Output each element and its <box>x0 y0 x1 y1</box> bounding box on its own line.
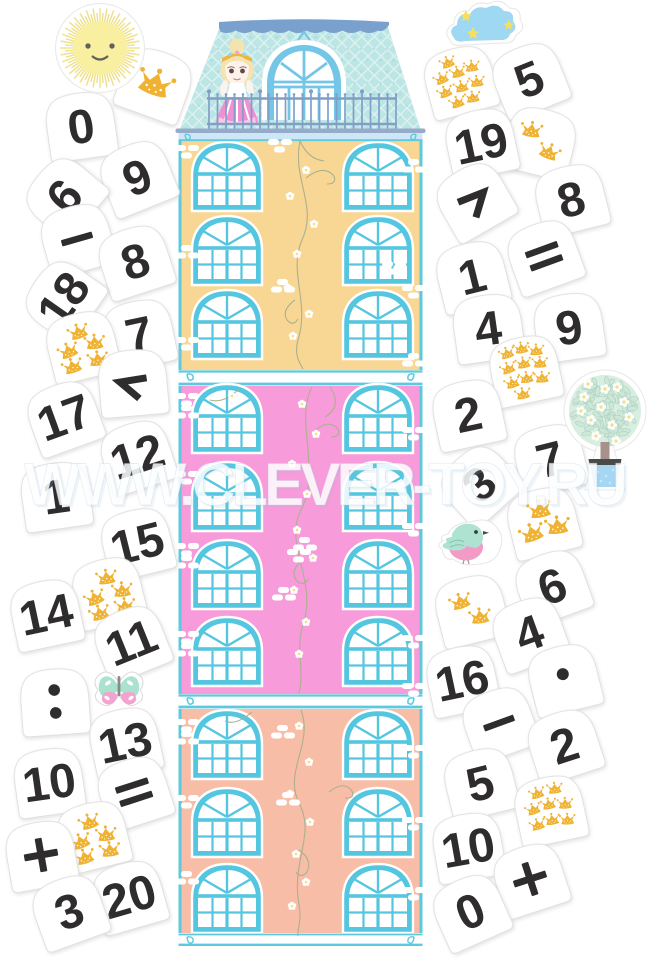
svg-text:WWW.CLEVER-TOY.RU: WWW.CLEVER-TOY.RU <box>24 451 628 518</box>
svg-text:14: 14 <box>15 584 79 647</box>
svg-text:10: 10 <box>19 754 79 814</box>
svg-text:10: 10 <box>437 818 499 879</box>
